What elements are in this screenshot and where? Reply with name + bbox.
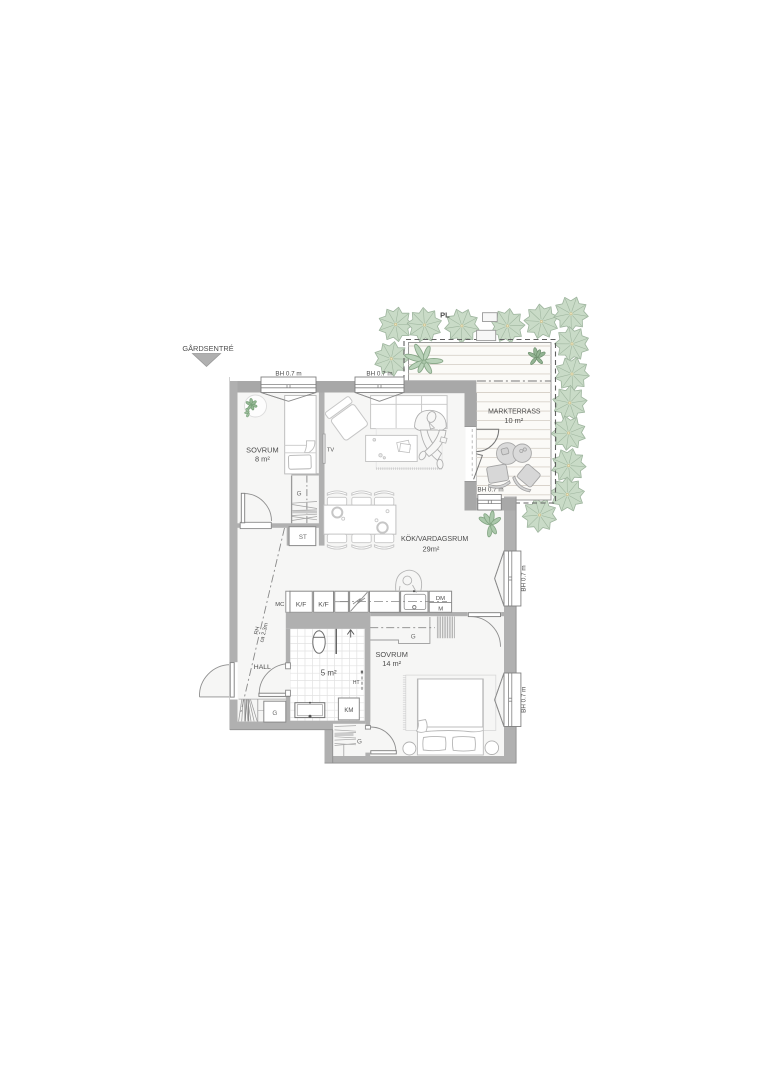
svg-text:GÅRDSENTRÉ: GÅRDSENTRÉ (182, 344, 233, 353)
svg-text:TV: TV (327, 447, 334, 453)
svg-text:SOVRUM: SOVRUM (375, 650, 407, 659)
svg-text:KM: KM (344, 708, 353, 714)
svg-text:BH 0.7 m: BH 0.7 m (366, 371, 392, 378)
svg-text:KÖK/VARDAGSRUM: KÖK/VARDAGSRUM (401, 535, 468, 543)
svg-text:BH 0.7 m: BH 0.7 m (275, 371, 301, 378)
svg-text:14 m²: 14 m² (382, 659, 401, 668)
svg-text:BH 0.7 m: BH 0.7 m (521, 565, 528, 591)
svg-text:G: G (272, 710, 277, 717)
svg-text:BH 0.7 m: BH 0.7 m (521, 687, 528, 713)
svg-text:G: G (357, 739, 362, 746)
svg-text:HALL: HALL (254, 664, 271, 671)
svg-text:ST: ST (299, 534, 307, 541)
svg-text:MC: MC (275, 602, 284, 608)
svg-text:5 m²: 5 m² (321, 669, 337, 678)
svg-text:29m²: 29m² (422, 545, 439, 554)
svg-text:G: G (297, 491, 302, 498)
svg-text:10 m²: 10 m² (504, 416, 523, 425)
svg-text:K/F: K/F (318, 601, 328, 608)
svg-text:8 m²: 8 m² (255, 455, 270, 464)
svg-text:M: M (438, 607, 443, 613)
svg-text:MARKTERRASS: MARKTERRASS (488, 409, 541, 416)
svg-text:PL: PL (440, 311, 450, 320)
svg-text:G: G (411, 634, 416, 641)
svg-text:SOVRUM: SOVRUM (246, 446, 278, 455)
svg-text:HT: HT (353, 680, 360, 686)
svg-text:K/F: K/F (296, 601, 306, 608)
